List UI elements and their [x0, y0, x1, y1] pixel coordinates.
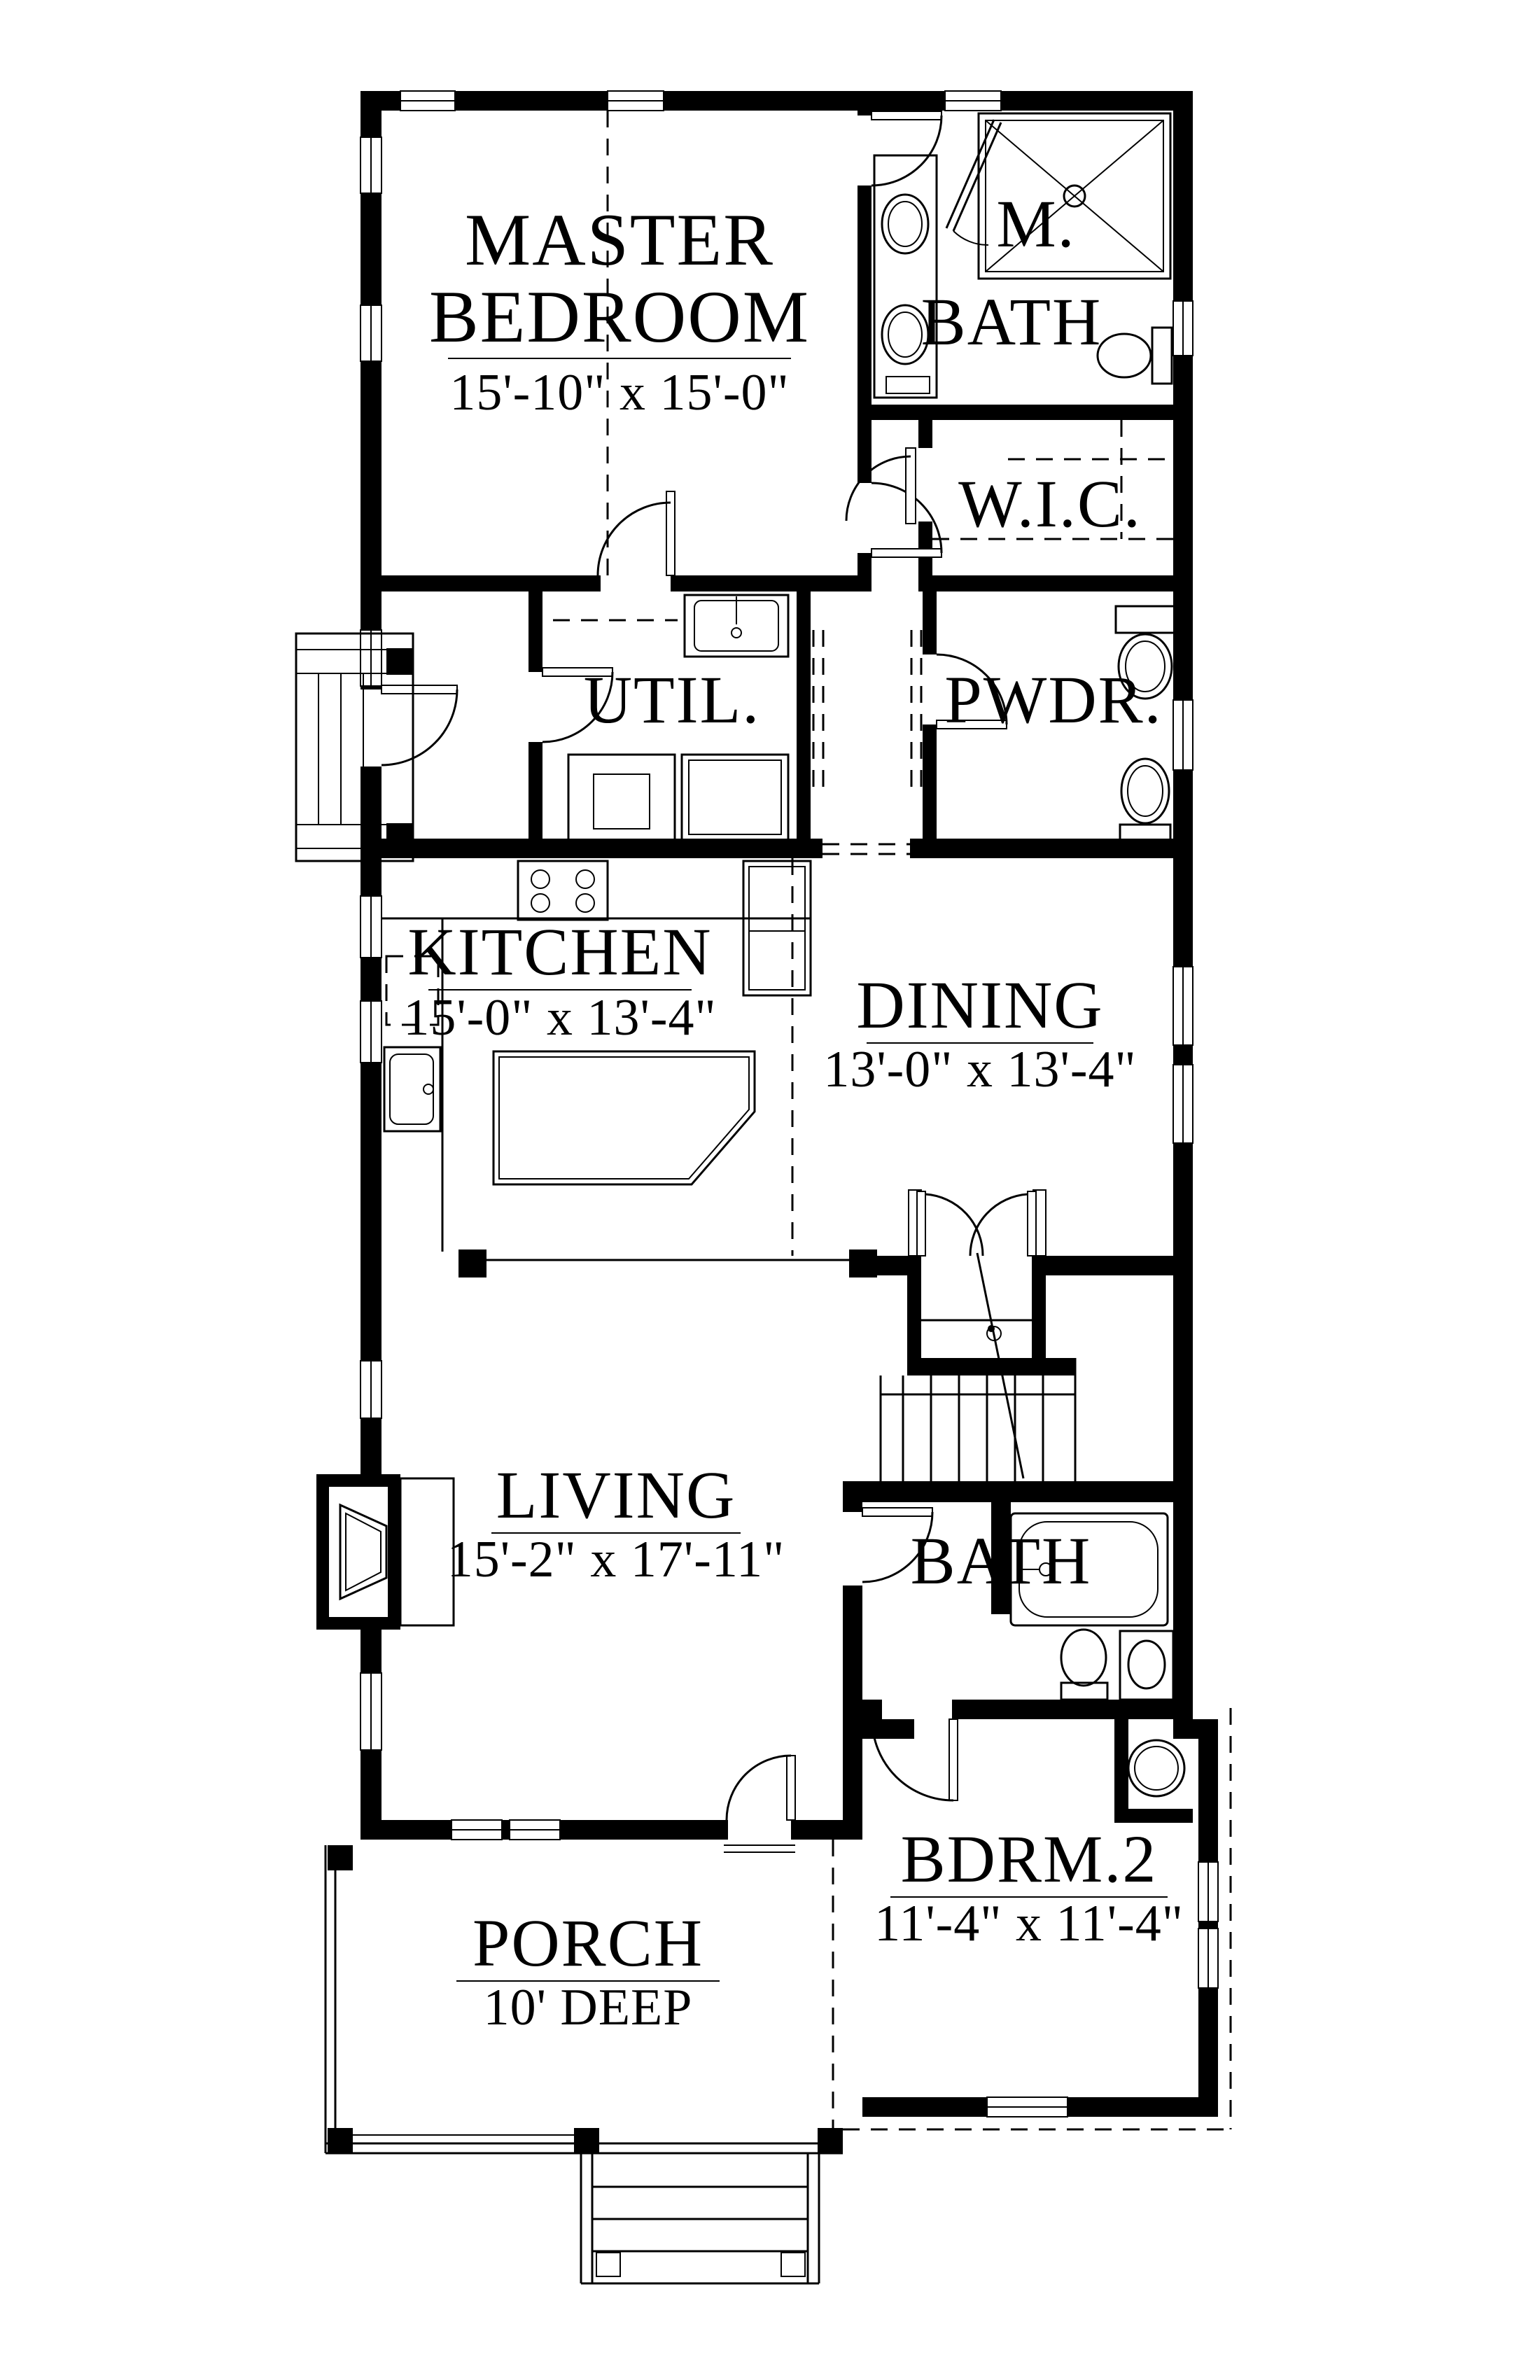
window-kitchen-left-1: [360, 896, 381, 958]
fireplace: [323, 1478, 454, 1625]
floor-plan-drawing: MASTER BEDROOM 15'-10" x 15'-0" M. BATH …: [0, 0, 1540, 2380]
mbath-toilet: [1098, 328, 1172, 384]
label-bath: BATH: [911, 1523, 1092, 1598]
bdrm2-name: BDRM.2: [901, 1821, 1158, 1896]
stair-closet-double-doors: [909, 1190, 1046, 1256]
water-heater: [1128, 1740, 1184, 1796]
range: [518, 861, 608, 920]
util-name: UTIL.: [584, 662, 761, 737]
refrigerator: [743, 861, 811, 995]
living-dims: 15'-2" x 17'-11": [447, 1531, 785, 1588]
label-master-bedroom: MASTER BEDROOM 15'-10" x 15'-0": [429, 199, 810, 421]
kitchen-sink: [384, 1047, 440, 1131]
master-bedroom-dims: 15'-10" x 15'-0": [449, 364, 789, 421]
label-m-bath: M. BATH: [921, 186, 1102, 359]
window-master-left-2: [360, 305, 381, 361]
window-master-top-1: [400, 91, 455, 111]
label-wic: W.I.C.: [958, 466, 1142, 541]
window-mbath-top: [945, 91, 1001, 111]
floor-plan-page: MASTER BEDROOM 15'-10" x 15'-0" M. BATH …: [0, 0, 1540, 2380]
bath-name: BATH: [911, 1523, 1092, 1598]
porch-steps: [581, 2153, 819, 2283]
bdrm2-dims: 11'-4" x 11'-4": [874, 1895, 1184, 1952]
wic-name: W.I.C.: [958, 466, 1142, 541]
window-living-front-1: [451, 1820, 502, 1840]
dryer: [682, 755, 788, 840]
washer: [568, 755, 675, 840]
label-porch: PORCH 10' DEEP: [456, 1905, 720, 2036]
window-kitchen-left-2: [360, 1001, 381, 1063]
kitchen-island: [493, 1051, 755, 1184]
porch-post-bottom-left: [328, 2128, 353, 2153]
living-name: LIVING: [496, 1457, 736, 1532]
label-util: UTIL.: [584, 662, 761, 737]
window-master-top-2: [608, 91, 664, 111]
side-stoop: [296, 633, 413, 861]
porch-name: PORCH: [472, 1905, 703, 1980]
double-vanity: [874, 155, 937, 398]
master-bedroom-name-2: BEDROOM: [429, 276, 810, 358]
window-pwdr-right: [1173, 700, 1193, 770]
bath-vanity: [1120, 1631, 1173, 1700]
window-dining-right-1: [1173, 967, 1193, 1045]
hearth: [400, 1478, 454, 1625]
window-living-left-1: [360, 1361, 381, 1418]
column-post-right: [849, 1249, 877, 1277]
util-sink: [685, 595, 788, 657]
m-bath-name-1: M.: [996, 186, 1075, 261]
kitchen-dims: 15'-0" x 13'-4": [403, 989, 716, 1046]
step-foot-right: [781, 2253, 805, 2276]
stoop-post-bottom: [386, 823, 413, 850]
pwdr-name: PWDR.: [944, 662, 1162, 737]
porch-post-steps-right: [818, 2128, 843, 2153]
step-foot-left: [596, 2253, 620, 2276]
window-living-left-2: [360, 1673, 381, 1750]
label-bdrm2: BDRM.2 11'-4" x 11'-4": [874, 1821, 1184, 1952]
label-kitchen: KITCHEN 15'-0" x 13'-4": [403, 914, 716, 1046]
window-bdrm2-right-2: [1198, 1928, 1218, 1988]
bath-toilet: [1061, 1630, 1107, 1700]
porch-dims: 10' DEEP: [484, 1979, 693, 2036]
dining-dims: 13'-0" x 13'-4": [823, 1041, 1136, 1098]
window-mbath-right: [1173, 301, 1193, 356]
m-bath-name-2: BATH: [921, 284, 1102, 359]
pwdr-toilet: [1120, 759, 1170, 841]
window-bdrm2-right-1: [1198, 1862, 1218, 1921]
label-dining: DINING 13'-0" x 13'-4": [823, 967, 1136, 1098]
side-entry-door: [381, 685, 457, 765]
porch-post-steps-left: [574, 2128, 599, 2153]
mbath-door: [871, 111, 941, 185]
column-post-left: [458, 1249, 486, 1277]
porch-post-top-left: [328, 1845, 353, 1870]
dining-name: DINING: [856, 967, 1103, 1042]
window-dining-right-2: [1173, 1065, 1193, 1143]
kitchen-name: KITCHEN: [407, 914, 712, 989]
master-bedroom-name-1: MASTER: [465, 199, 774, 281]
label-living: LIVING 15'-2" x 17'-11": [447, 1457, 785, 1588]
label-pwdr: PWDR.: [944, 662, 1162, 737]
stoop-post-top: [386, 648, 413, 675]
shower-door: [946, 120, 1001, 245]
structure-posts: [458, 1249, 877, 1277]
master-entry-door: [598, 491, 675, 575]
window-living-front-2: [510, 1820, 560, 1840]
wic-door: [846, 448, 916, 524]
window-bdrm2-front: [987, 2097, 1067, 2117]
window-master-left-1: [360, 137, 381, 193]
